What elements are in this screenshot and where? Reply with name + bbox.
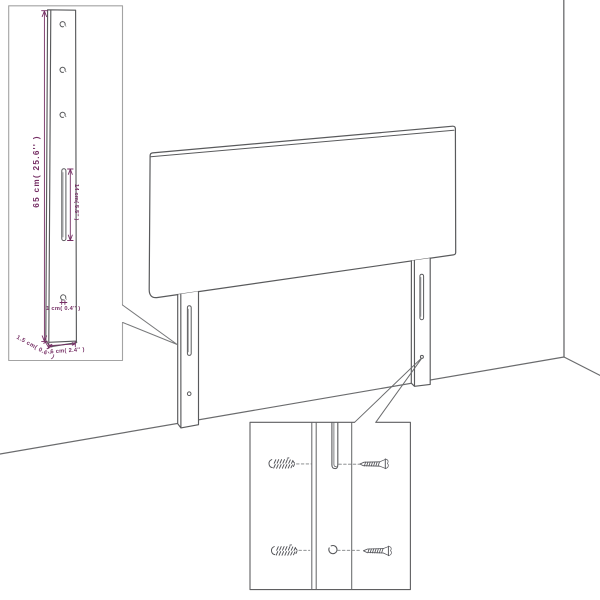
svg-text:65 cm( 25.6'' ): 65 cm( 25.6'' ) bbox=[32, 135, 41, 208]
svg-text:14 cm( 5.5'' ): 14 cm( 5.5'' ) bbox=[73, 184, 79, 221]
svg-text:1 cm( 0.4'' ): 1 cm( 0.4'' ) bbox=[46, 306, 80, 312]
svg-text:6 cm( 2.4'' ): 6 cm( 2.4'' ) bbox=[50, 347, 85, 355]
